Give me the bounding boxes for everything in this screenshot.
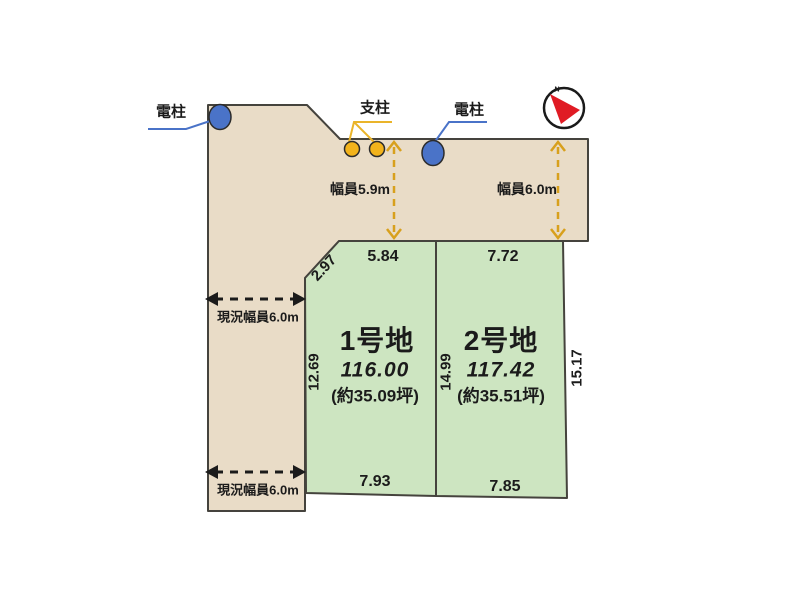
pole-left-leader <box>148 120 213 129</box>
utility-pole-right-icon <box>422 141 444 166</box>
plot2-area-sqm: 117.42 <box>467 360 536 381</box>
land-plot-diagram: 電柱 支柱 電柱 N 幅員5.9m 幅員6.0m 現況幅員6.0m 現況幅員6.… <box>0 0 800 600</box>
plot2-dim-bottom: 7.85 <box>489 479 520 495</box>
support-post-icon-1 <box>345 142 360 157</box>
road-width-60-label: 幅員6.0m <box>497 182 557 196</box>
plot1-area-tsubo: (約35.09坪) <box>331 388 419 405</box>
pole-right-label: 電柱 <box>454 103 484 118</box>
current-width-upper-label: 現況幅員6.0m <box>217 311 299 324</box>
plot2-name: 2号地 <box>464 327 539 355</box>
support-label: 支柱 <box>360 101 390 116</box>
north-letter: N <box>554 87 559 94</box>
plot1-dim-left: 12.69 <box>307 353 322 391</box>
plot2-dim-top: 7.72 <box>487 249 518 265</box>
current-width-lower-label: 現況幅員6.0m <box>217 484 299 497</box>
pole-left-label: 電柱 <box>156 105 186 120</box>
plot2-area-tsubo: (約35.51坪) <box>457 388 545 405</box>
utility-pole-left-icon <box>209 105 231 130</box>
plot2-dim-left: 14.99 <box>439 353 454 391</box>
plot1-dim-bottom: 7.93 <box>359 474 390 490</box>
plot1-dim-top: 5.84 <box>367 249 398 265</box>
plot1-name: 1号地 <box>340 327 415 355</box>
plot2-dim-right: 15.17 <box>570 349 585 387</box>
support-post-icon-2 <box>370 142 385 157</box>
plot1-area-sqm: 116.00 <box>341 360 410 381</box>
diagram-canvas <box>0 0 800 600</box>
north-compass-icon <box>544 88 584 128</box>
road-width-59-label: 幅員5.9m <box>330 182 390 196</box>
